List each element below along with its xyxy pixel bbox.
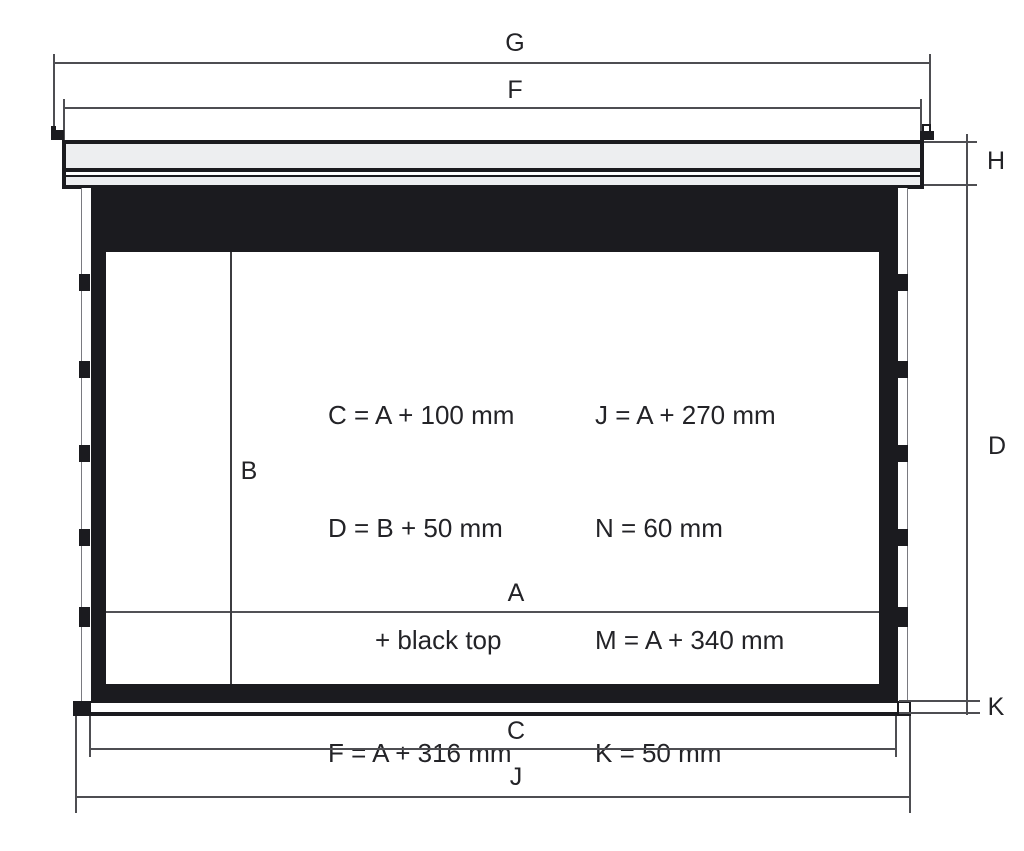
tension-tab bbox=[79, 529, 90, 546]
tension-tab bbox=[897, 607, 908, 627]
tension-tab bbox=[897, 361, 908, 378]
dim-tick-h-top bbox=[924, 141, 977, 143]
dim-label-j: J bbox=[496, 764, 536, 792]
dim-label-h: H bbox=[982, 148, 1010, 176]
formula-j: J = A + 270 mm bbox=[595, 397, 784, 435]
tension-tab bbox=[79, 274, 90, 291]
formula-column-right: J = A + 270 mm N = 60 mm M = A + 340 mm … bbox=[595, 322, 784, 851]
dim-line-hdk-vertical bbox=[966, 134, 968, 715]
dim-ext-j-right bbox=[909, 716, 911, 813]
dim-label-g: G bbox=[495, 30, 535, 58]
dim-ext-j-left bbox=[75, 716, 77, 813]
dim-line-f bbox=[63, 107, 922, 109]
formula-f: F = A + 316 mm bbox=[328, 735, 514, 773]
slat-end-cap-left bbox=[73, 701, 91, 716]
formula-n: N = 60 mm bbox=[595, 510, 784, 548]
dim-label-f: F bbox=[495, 77, 535, 105]
bottom-slat bbox=[73, 701, 911, 716]
screen-casing bbox=[62, 140, 924, 189]
dim-line-j bbox=[75, 796, 911, 798]
formula-d-continued: + black top bbox=[328, 622, 514, 660]
tension-tab bbox=[79, 361, 90, 378]
dim-label-d: D bbox=[983, 433, 1011, 461]
casing-groove-line-2 bbox=[66, 175, 920, 177]
dim-ext-c-right bbox=[895, 716, 897, 757]
tension-tab bbox=[897, 274, 908, 291]
dim-ext-g-right bbox=[929, 54, 931, 134]
dim-ext-c-left bbox=[89, 716, 91, 757]
dim-line-b bbox=[230, 252, 232, 684]
dim-line-g bbox=[53, 62, 931, 64]
formula-h: H = 105 mm bbox=[328, 847, 514, 851]
formula-k: K = 50 mm bbox=[595, 735, 784, 773]
dim-label-k: K bbox=[982, 694, 1010, 722]
formula-m: M = A + 340 mm bbox=[595, 622, 784, 660]
tension-tab bbox=[79, 607, 90, 627]
dim-line-c bbox=[89, 748, 897, 750]
formula-d: D = B + 50 mm bbox=[328, 510, 514, 548]
formula-c: C = A + 100 mm bbox=[328, 397, 514, 435]
dim-label-b: B bbox=[234, 458, 264, 486]
dim-tick-h-bottom bbox=[924, 184, 977, 186]
dim-ext-g-left bbox=[53, 54, 55, 132]
formula-column-left: C = A + 100 mm D = B + 50 mm + black top… bbox=[328, 322, 514, 851]
mounting-bracket-left-nub bbox=[51, 126, 56, 132]
tension-tab bbox=[897, 529, 908, 546]
dim-label-c: C bbox=[496, 718, 536, 746]
screen-dimension-diagram: G F A B C = A + 100 mm D = B + 50 mm + b… bbox=[0, 0, 1024, 851]
dim-tick-k-bottom bbox=[899, 712, 980, 714]
mounting-bracket-right-clip bbox=[922, 124, 931, 133]
tension-tab bbox=[897, 445, 908, 462]
formula-g: G = A + 368 mm bbox=[595, 847, 784, 851]
dim-tick-k-top bbox=[899, 700, 980, 702]
tension-tab bbox=[79, 445, 90, 462]
